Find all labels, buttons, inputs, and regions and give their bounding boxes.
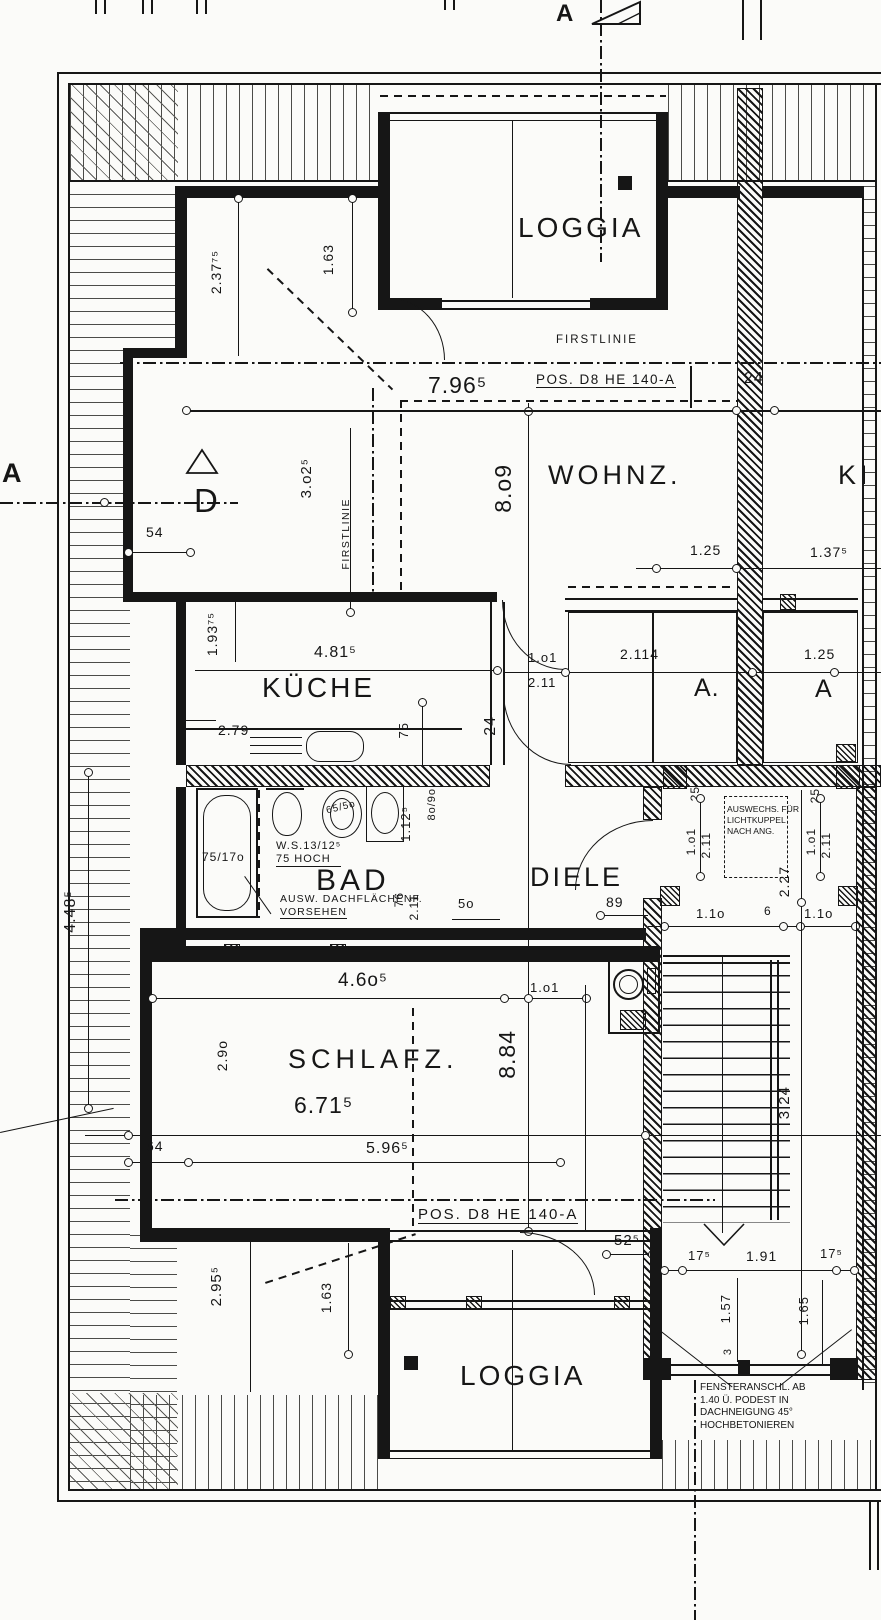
wall [763,186,862,198]
roof-corner-hatch [70,85,178,181]
dim-tick [779,922,788,931]
dim-line [662,1270,858,1271]
dim-tick [582,994,591,1003]
dim-label: 54 [146,524,164,540]
frame-line [877,1500,879,1570]
wall-stub [95,0,97,14]
wall [662,186,740,198]
firstlinie-label-left: FIRSTLINIE [340,498,352,570]
dim-tick [732,406,741,415]
window-line [390,1308,650,1310]
dim-tick [596,911,605,920]
dim-tick [602,1250,611,1259]
firstlinie-dashdot [120,362,881,364]
counter-line [250,737,302,738]
dim-tick [732,564,741,573]
kneewall-dashed [400,400,737,402]
dim-chain-line [528,403,529,1233]
dim-line [422,700,423,765]
dim-tick [524,994,533,1003]
dim-tick [182,406,191,415]
dim-line [88,772,89,1112]
wall [140,1228,390,1242]
frame-line [68,1489,881,1491]
dim-line [250,1240,251,1392]
dim-line [186,720,216,721]
section-marker-d: D [194,482,219,520]
firstlinie-dashdot-left [372,388,374,600]
dim-tick [124,1158,133,1167]
dim-tick [652,564,661,573]
dim-tick [418,698,427,707]
dim-label: 64 [146,1138,164,1154]
wall-stub [205,0,207,14]
closet-divider [652,612,654,763]
dim-label: 2.37⁷⁵ [208,250,224,294]
dim-bad-door: 76 [392,892,406,907]
dim-label: 4.48⁵ [62,890,80,933]
sill-hatch [660,886,680,906]
dim-tick [348,308,357,317]
floorplan-drawing: A LOGGIA [0,0,881,1620]
wall [140,946,660,962]
dim-label: 1.25 [690,542,721,558]
kneewall-dashed [412,1008,414,1232]
window-line [442,308,590,310]
room-label-loggia-top: LOGGIA [518,212,643,244]
room-label-loggia-bottom: LOGGIA [460,1360,585,1392]
dim-label: 5.96⁵ [366,1140,409,1158]
dim-tick [748,668,757,677]
loggia-wall [378,1450,662,1452]
dim-tick [561,668,570,677]
window-mullion [738,1360,750,1374]
dim-tick [500,994,509,1003]
section-marker-a-left: A [2,458,23,489]
dim-tick [816,872,825,881]
note-fenster-line1: FENSTERANSCHL. AB [700,1382,806,1393]
closet-a2 [763,612,858,763]
dim-label: 2.79 [218,722,249,738]
wall [830,1358,858,1380]
dim-tick [660,1266,669,1275]
wall-line [490,602,492,765]
dim-tick [234,194,243,203]
wall [176,928,646,940]
roof-edge-dashed [380,95,666,97]
sill-hatch [836,765,860,789]
dim-tick [641,1131,650,1140]
dim-label: 4.81⁵ [314,644,357,662]
dim-label: 24 [482,716,500,736]
dim-tick [678,1266,687,1275]
roof-hatch-band [668,85,875,181]
room-label-a2: A [815,675,833,704]
wall-line [503,602,505,765]
dim-basin-h: 1.12⁵ [398,806,413,842]
closet-front-dashed [568,586,735,588]
sill-hatch [390,1296,406,1310]
dim-tick [124,1131,133,1140]
sill-hatch [620,1010,646,1030]
note-fenster-line4: HOCHBETONIEREN [700,1420,794,1431]
pos-label-top: POS. D8 HE 140-A [536,372,676,388]
wall-stub [742,0,744,40]
loggia-wall [650,1242,662,1458]
stair-center-line [722,955,723,1233]
frame-line [57,72,59,1502]
dim-label: 2.9o [214,1040,230,1071]
note-dach-line2: VORSEHEN [280,906,347,919]
dim-label: 17⁵ [820,1246,843,1261]
dim-label: 2.11 [528,675,556,690]
washing-machine-drum-inner [619,975,638,994]
room-label-ki: KI [838,460,872,491]
window-line [390,1300,650,1302]
dim-tick [186,548,195,557]
stair-rail [770,960,772,1220]
dim-label: 8.84 [494,1030,521,1079]
toilet-bowl [272,792,302,836]
loggia-wall [378,1242,390,1458]
dim-label: 1.o1 [530,980,559,995]
door-arc [575,820,653,890]
dim-label: 6 [764,904,772,918]
dim-chain-line [801,790,802,1358]
dim-label: 24 [744,370,764,388]
note-ws-line2: 75 HOCH [276,853,331,865]
dim-label: 8.o9 [490,464,517,513]
loggia-wall [378,112,668,114]
dim-label: 1.63 [318,1282,334,1313]
sill-hatch [466,1296,482,1310]
loggia-center-line [512,120,513,298]
window-line [442,300,590,302]
note-auswechs-line2: LICHTKUPPEL [727,815,786,825]
roof-hatch-band [70,181,130,1489]
note-ws-line1: W.S.13/12⁵ [276,840,341,852]
dim-label: 1.65 [796,1296,811,1325]
dim-label: 1.1o [804,906,833,921]
loggia-wall [378,1458,662,1459]
dim-tick [493,666,502,675]
roof-pitch-dashed [267,268,393,390]
frame-line [57,72,881,74]
pos-label-bottom: POS. D8 HE 140-A [418,1206,578,1224]
room-line [585,985,586,1232]
room-label-schlafz: SCHLAFZ. [288,1044,459,1075]
sill-block [404,1356,418,1370]
dim-label: 2.11 [699,832,713,858]
wall-stub [196,0,198,14]
dim-tick [832,1266,841,1275]
note-ws: W.S.13/12⁵ 75 HOCH [276,840,341,867]
dim-label: 1.o1 [804,828,818,855]
loggia-wall [656,112,668,310]
sill-hatch [663,765,687,789]
dim-tick [524,407,533,416]
door-arc [503,692,571,765]
note-auswechs-line3: NACH ANG. [727,826,774,836]
dim-label: 1.91 [746,1248,777,1264]
note-fenster-line2: 1.40 Ü. PODEST IN [700,1395,789,1406]
stair-wall [856,787,877,1380]
wall [643,1358,671,1380]
wall [123,592,497,602]
wall-stub [453,0,455,10]
roof-corner-hatch [70,1393,178,1489]
wall [590,298,668,310]
counter-line [250,745,302,746]
dim-tick [148,994,157,1003]
wall [123,358,133,598]
wall [123,348,187,358]
dim-tick [850,1266,859,1275]
note-auswechs-line1: AUSWECHS. FÜR [727,804,799,814]
note-fensteranschluss: FENSTERANSCHL. AB 1.40 Ü. PODEST IN DACH… [700,1382,806,1432]
dim-label: 2.95⁵ [208,1266,225,1306]
room-label-kueche: KÜCHE [262,672,375,704]
dim-tick [84,768,93,777]
sill-hatch [836,744,856,762]
dim-tick [124,548,133,557]
dim-label: 1.1o [696,906,725,921]
axis-dashdot [694,1380,696,1620]
dim-line [348,1243,349,1355]
dim-tick [797,898,806,907]
stair-direction-arrow [700,1222,748,1248]
dim-label: 1.o1 [684,828,698,855]
dim-tick [346,608,355,617]
dim-label: 3.24 [776,1086,793,1119]
dim-label: 1.37⁵ [810,544,848,560]
wall [650,1228,662,1242]
sill-hatch [330,944,346,962]
note-auswechs: AUSWECHS. FÜR LICHTKUPPEL NACH ANG. [727,804,799,837]
section-flag-icon [590,0,644,26]
loggia-wall [378,112,390,310]
toilet-tank [266,788,304,790]
dim-label: 4.6o⁵ [338,970,388,992]
dim-tick [770,406,779,415]
dim-line [152,998,588,999]
dim-line [352,198,353,314]
dim-label: 7.96⁵ [428,372,487,399]
roof-hatch-band [130,181,177,351]
dim-label: 2.11 [819,832,833,858]
section-marker-a-top: A [556,0,574,28]
sill-block [618,176,632,190]
washing-machine-panel [647,968,656,994]
dim-label: 3.o2⁵ [298,458,315,498]
dim-tick [696,872,705,881]
chimney-wall [737,88,763,765]
window-line [671,1374,830,1376]
dim-label: 5o [458,896,474,911]
dim-label: 6.71⁵ [294,1092,353,1119]
dim-label: 1.25 [804,646,835,662]
note-fenster-line3: DACHNEIGUNG 45° [700,1407,793,1418]
dim-line [235,598,236,662]
kitchen-sink [306,731,364,762]
wall [176,787,186,930]
dim-label: 75 [396,722,411,738]
dim-label: 3 [722,1348,734,1355]
structural-wall [186,765,490,787]
dim-tick [348,194,357,203]
sill-hatch [838,886,858,906]
washbasin-inner [371,792,399,834]
dim-line [648,926,860,927]
loggia-wall [378,120,668,121]
dim-label: 1.63 [320,244,336,275]
pos-dashdot [115,1199,715,1201]
wall-stub [760,0,762,40]
roof-inner-edge [70,180,378,182]
window-line [565,598,737,600]
dim-tick [184,1158,193,1167]
wall-stub [104,0,106,14]
kneewall-dashed [400,400,402,597]
dim-label: 2.114 [620,646,659,662]
dim-line [737,1278,738,1362]
dim-tick [816,794,825,803]
dim-line [128,552,192,553]
frame-line [57,1500,881,1502]
dim-label: 2.27 [776,866,792,897]
dim-label: 1.93⁷⁵ [204,612,220,656]
dim-line [452,919,500,920]
dim-line [85,1135,881,1136]
dim-label: 17⁵ [688,1248,711,1263]
room-label-wohnz: WOHNZ. [548,460,681,491]
dim-bathtub: 75/17o [202,850,245,864]
wall-stub [142,0,144,14]
wall-stub [444,0,446,10]
dim-tick [556,1158,565,1167]
counter-line [250,753,302,754]
dim-tick [344,1350,353,1359]
stair-wall [643,787,662,820]
dim-label: 1.57 [718,1294,733,1323]
dim-tick [100,498,109,507]
dim-line [238,198,239,356]
frame-line [869,1500,871,1570]
section-triangle-icon [184,448,220,476]
firstlinie-label-top: FIRSTLINIE [556,334,638,346]
dim-basin: 8o/9o [426,788,438,821]
loggia-center-line [512,1250,513,1450]
roof-inner-edge [668,180,875,182]
dim-label: 1.o1 [528,650,557,665]
landing-edge [663,955,790,957]
wall [175,198,187,356]
dim-line [636,568,881,569]
dim-tick [797,1350,806,1359]
dim-bad-door-h: 2.11 [407,894,421,920]
structural-wall [565,765,881,787]
sill-hatch [224,944,240,962]
window-line [763,598,858,600]
leader-line [690,366,692,408]
dim-label: 89 [606,894,624,910]
dim-tick [696,794,705,803]
sill-hatch [614,1296,630,1310]
room-label-a1: A. [694,674,720,703]
wall-stub [151,0,153,14]
wall [176,602,186,765]
sill-hatch [780,594,796,610]
